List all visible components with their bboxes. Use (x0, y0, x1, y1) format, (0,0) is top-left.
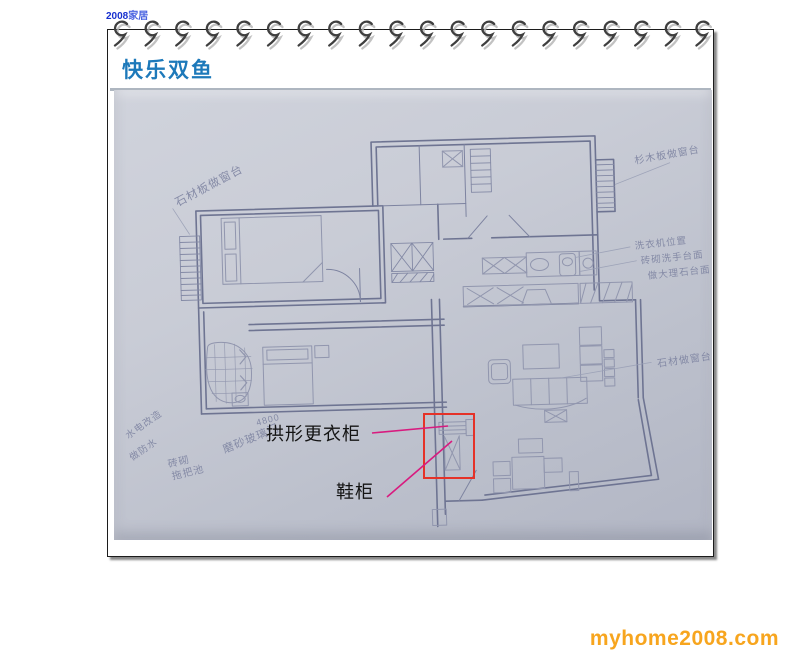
floorplan-photo: 石材板做窗台 杉木板做窗台 洗衣机位置 砖砌洗手台面 做大理石台面 石材做窗台 … (114, 90, 712, 540)
notebook-page: 快乐双鱼 (107, 29, 714, 557)
site-watermark[interactable]: myhome2008.com (590, 627, 779, 651)
shoe-cabinet-label: 鞋柜 (336, 478, 374, 504)
wardrobe-label: 拱形更衣柜 (266, 420, 361, 446)
site-logo-suffix: 家居 (128, 11, 148, 22)
wardrobe-pointer-line (372, 426, 448, 433)
page-title: 快乐双鱼 (122, 54, 214, 84)
shoe-cabinet-pointer-line (387, 441, 452, 497)
site-logo-year: 2008 (106, 11, 128, 22)
webpage-canvas: 2008家居 快乐双鱼 (0, 0, 786, 653)
annotation-overlay (114, 90, 712, 540)
site-logo[interactable]: 2008家居 (106, 12, 148, 22)
red-highlight-box (424, 414, 474, 478)
